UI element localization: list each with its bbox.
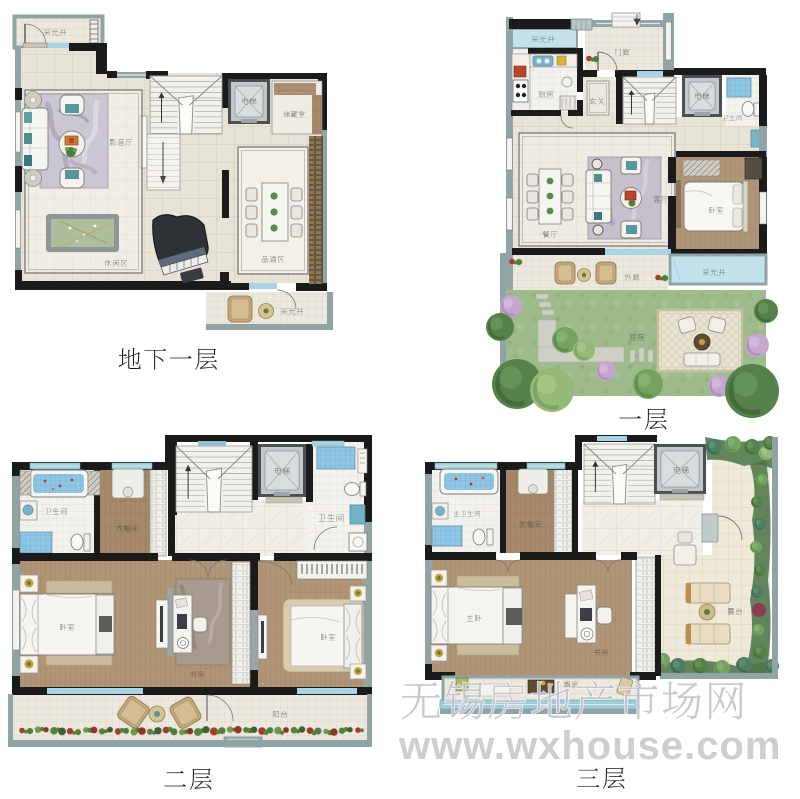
svg-text:www.wxhouse.com: www.wxhouse.com (398, 724, 781, 768)
